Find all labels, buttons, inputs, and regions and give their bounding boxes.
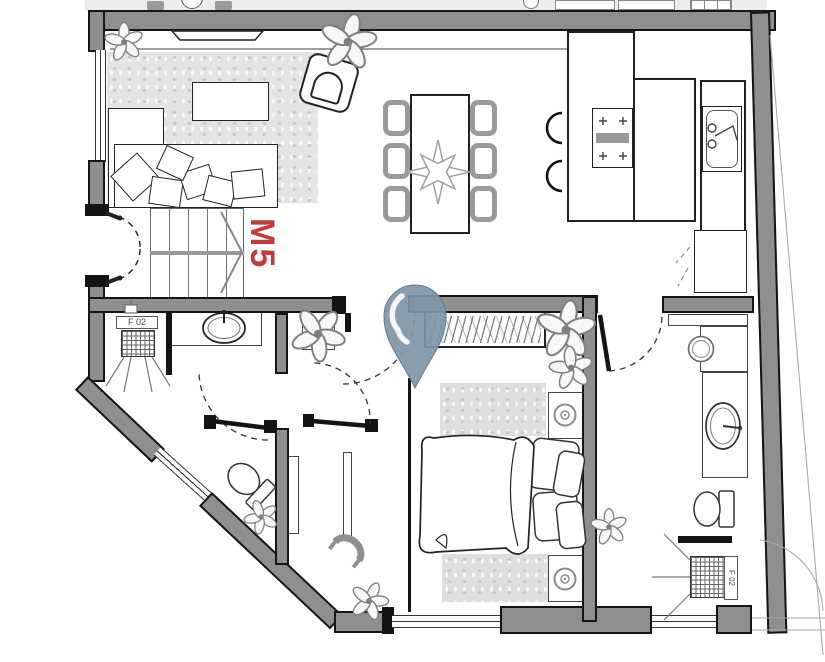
kitchen-cabinet <box>694 230 747 293</box>
armchair-seat <box>309 68 346 105</box>
toilet <box>220 456 275 511</box>
door-jamb <box>85 204 109 216</box>
window <box>95 50 106 162</box>
adjacent-table <box>181 0 203 9</box>
living-hall-door[interactable] <box>343 313 415 384</box>
door-jamb <box>365 419 378 432</box>
bed-pillows <box>528 437 586 549</box>
interior-wall-hall-vertical <box>275 428 289 565</box>
bath-door[interactable] <box>199 371 268 440</box>
cooktop-grill <box>596 133 629 143</box>
bathroom-vanity <box>702 372 748 478</box>
wardrobe <box>424 311 546 348</box>
nightstand <box>548 392 583 439</box>
cabinet-dashes <box>676 247 690 286</box>
mirror <box>343 452 352 537</box>
stairs-unit-label: M5 <box>244 218 280 298</box>
dining-chair <box>383 143 410 179</box>
bathroom-door[interactable] <box>600 315 662 371</box>
interior-wall-bedroom-top <box>408 295 598 313</box>
door-jamb <box>332 296 346 314</box>
adjacent-bed <box>555 0 615 10</box>
bedroom-rug <box>442 554 548 602</box>
adjacent-chair <box>215 1 232 10</box>
door-jamb <box>264 420 277 433</box>
dining-chair <box>470 186 497 222</box>
dining-chair <box>470 143 497 179</box>
bath-counter <box>170 313 262 346</box>
dining-chair <box>383 100 410 136</box>
wardrobe-hatch <box>429 316 541 343</box>
dining-table <box>410 94 470 234</box>
washing-machine <box>700 326 748 372</box>
kitchen-sink-basin <box>706 110 738 168</box>
floor-plan: M5 F 02 F 02 <box>0 0 825 662</box>
bed-duvet-corner <box>436 535 447 548</box>
shower-legs <box>106 357 170 392</box>
exterior-wall-bottom <box>500 606 652 634</box>
shower-fixture-label: F 02 <box>724 556 738 600</box>
interior-wall-bedroom-left <box>408 378 411 612</box>
interior-wall-bedroom-right <box>582 296 597 622</box>
shower-legs <box>652 534 690 620</box>
door-jamb <box>345 313 351 332</box>
shower-fixture <box>690 556 726 598</box>
desk-chair <box>330 532 367 567</box>
adjacent-bed <box>618 0 675 10</box>
bathroom-partition <box>678 536 732 543</box>
shower-partition <box>166 313 172 375</box>
office-door[interactable] <box>312 363 370 426</box>
interior-wall-bathroom-top <box>662 296 754 313</box>
shower-fixture <box>121 330 155 357</box>
exterior-wall-right <box>750 11 787 633</box>
coffee-table <box>192 82 269 121</box>
bathroom-shelf <box>668 314 748 326</box>
bed-duvet-fold <box>510 442 518 546</box>
tv <box>172 31 263 40</box>
bed <box>419 435 586 554</box>
staircase-landing-line <box>150 251 244 255</box>
window <box>392 615 502 628</box>
sofa-pillow <box>148 176 184 208</box>
interior-wall-hall <box>88 297 345 313</box>
adjacent-chair <box>147 1 164 10</box>
exterior-wall-top <box>88 10 776 31</box>
nightstand <box>548 555 583 602</box>
adjacent-cabinet <box>690 0 732 10</box>
exterior-wall-diagonal <box>75 376 165 463</box>
dining-chair <box>383 186 410 222</box>
adjacent-sink <box>523 0 539 9</box>
dining-chair <box>470 100 497 136</box>
interior-wall-hall-vertical <box>275 313 288 374</box>
bedroom-rug <box>440 383 546 436</box>
exterior-wall-left <box>88 160 105 208</box>
bar-stool <box>547 113 562 191</box>
window <box>652 615 718 628</box>
shower-fixture-label: F 02 <box>116 316 158 329</box>
entry-door[interactable] <box>106 213 140 283</box>
toilet <box>694 491 734 527</box>
door-jamb <box>303 414 314 427</box>
plant-pot <box>302 324 335 350</box>
bed-duvet <box>419 435 534 554</box>
kitchen-counter <box>633 78 696 222</box>
exterior-wall-diagonal <box>199 492 343 629</box>
exterior-wall-left <box>88 10 105 52</box>
exterior-wall-bottom-corner <box>716 605 752 634</box>
door-jamb <box>204 415 216 429</box>
sofa-pillow <box>231 168 266 199</box>
